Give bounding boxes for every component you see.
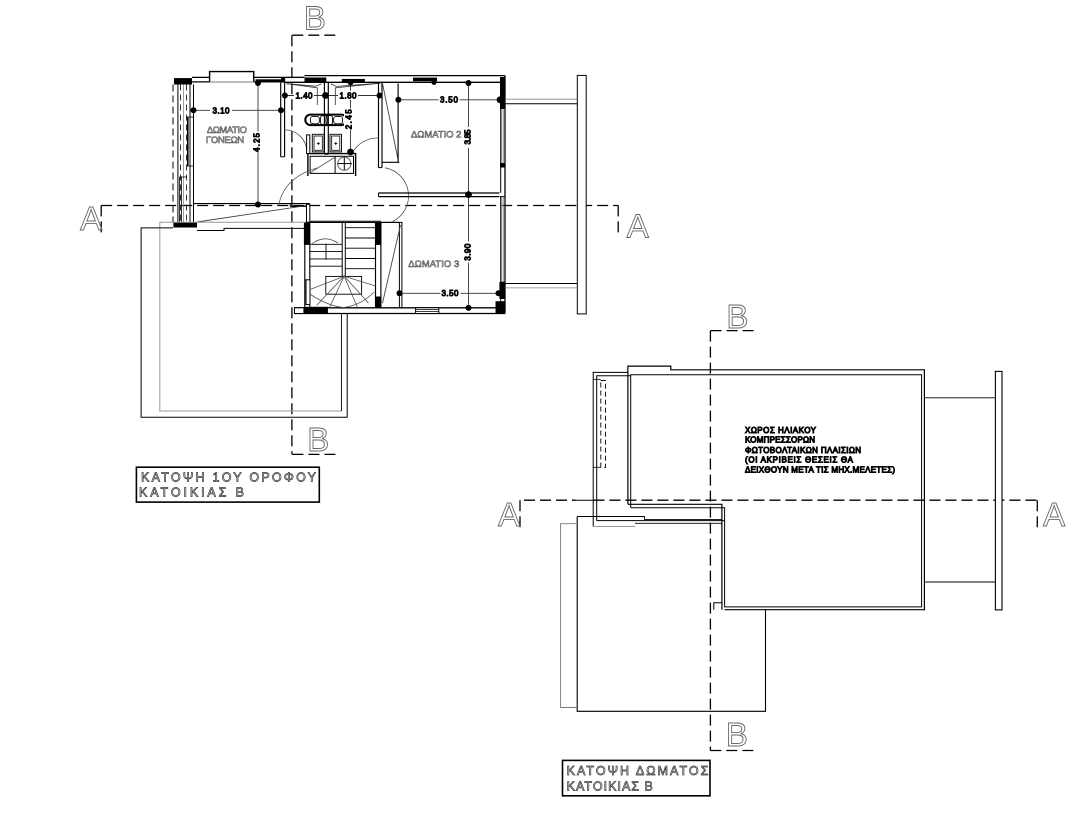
- svg-text:2.45: 2.45: [345, 109, 354, 130]
- svg-text:A: A: [498, 496, 520, 533]
- svg-text:1.80: 1.80: [340, 92, 358, 101]
- svg-text:4.25: 4.25: [253, 132, 262, 152]
- svg-text:ΔΕΙΧΘΟΥΝ ΜΕΤΑ ΤΙΣ ΜΗΧ.ΜΕΛΕΤΕΣ): ΔΕΙΧΘΟΥΝ ΜΕΤΑ ΤΙΣ ΜΗΧ.ΜΕΛΕΤΕΣ): [745, 465, 895, 474]
- svg-text:3.90: 3.90: [464, 243, 473, 261]
- svg-text:3.10: 3.10: [213, 106, 231, 115]
- svg-text:ΔΩΜΑΤΙΟ 3: ΔΩΜΑΤΙΟ 3: [408, 259, 460, 270]
- svg-text:3.50: 3.50: [442, 289, 460, 298]
- svg-text:3.85: 3.85: [464, 129, 473, 145]
- svg-text:B: B: [726, 298, 748, 335]
- svg-text:ΦΩΤΟΒΟΛΤΑΙΚΩΝ ΠΛΑΙΣΙΩΝ: ΦΩΤΟΒΟΛΤΑΙΚΩΝ ΠΛΑΙΣΙΩΝ: [745, 446, 861, 455]
- svg-text:A: A: [1043, 496, 1065, 533]
- svg-text:3.50: 3.50: [440, 96, 459, 105]
- svg-text:ΧΩΡΟΣ ΗΛΙΑΚΟΥ: ΧΩΡΟΣ ΗΛΙΑΚΟΥ: [745, 426, 817, 435]
- svg-text:ΚΑΤΟΨΗ 1ΟΥ ΟΡΟΦΟΥ: ΚΑΤΟΨΗ 1ΟΥ ΟΡΟΦΟΥ: [141, 471, 317, 485]
- svg-text:ΚΑΤΟΙΚΙΑΣ Β: ΚΑΤΟΙΚΙΑΣ Β: [567, 779, 653, 793]
- svg-text:(ΟΙ ΑΚΡΙΒΕΙΣ ΘΕΣΕΙΣ ΘΑ: (ΟΙ ΑΚΡΙΒΕΙΣ ΘΕΣΕΙΣ ΘΑ: [745, 456, 854, 465]
- svg-text:ΚΟΜΠΡΕΣΣΟΡΩΝ: ΚΟΜΠΡΕΣΣΟΡΩΝ: [745, 436, 815, 445]
- svg-text:B: B: [726, 716, 748, 753]
- svg-text:B: B: [307, 421, 329, 458]
- svg-text:A: A: [80, 200, 102, 237]
- svg-text:A: A: [627, 207, 649, 244]
- svg-text:1.40: 1.40: [296, 92, 314, 101]
- svg-text:B: B: [304, 0, 326, 36]
- svg-text:ΓΟΝΕΩΝ: ΓΟΝΕΩΝ: [206, 135, 245, 146]
- svg-text:ΔΩΜΑΤΙΟ 2: ΔΩΜΑΤΙΟ 2: [411, 130, 462, 141]
